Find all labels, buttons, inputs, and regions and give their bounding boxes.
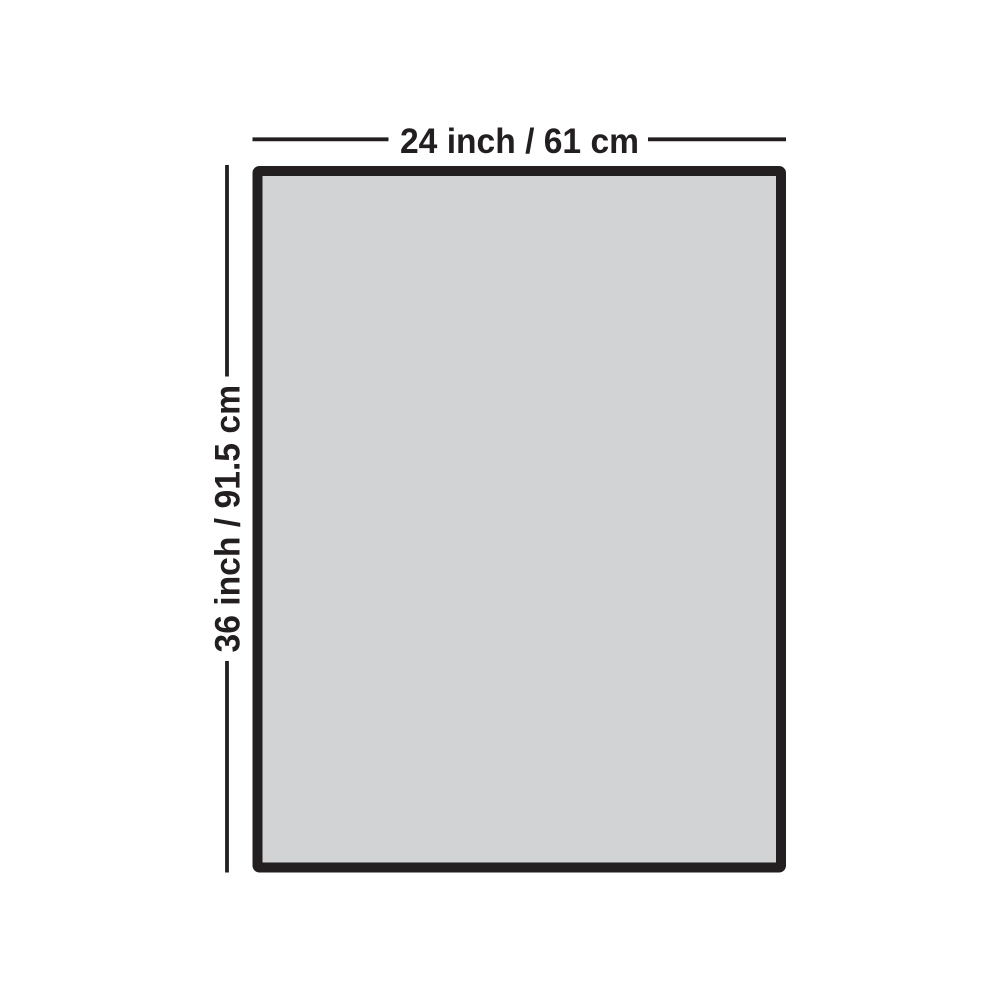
svg-text:36 inch / 91.5 cm: 36 inch / 91.5 cm [208, 385, 248, 653]
svg-text:24 inch / 61 cm: 24 inch / 61 cm [400, 121, 639, 161]
